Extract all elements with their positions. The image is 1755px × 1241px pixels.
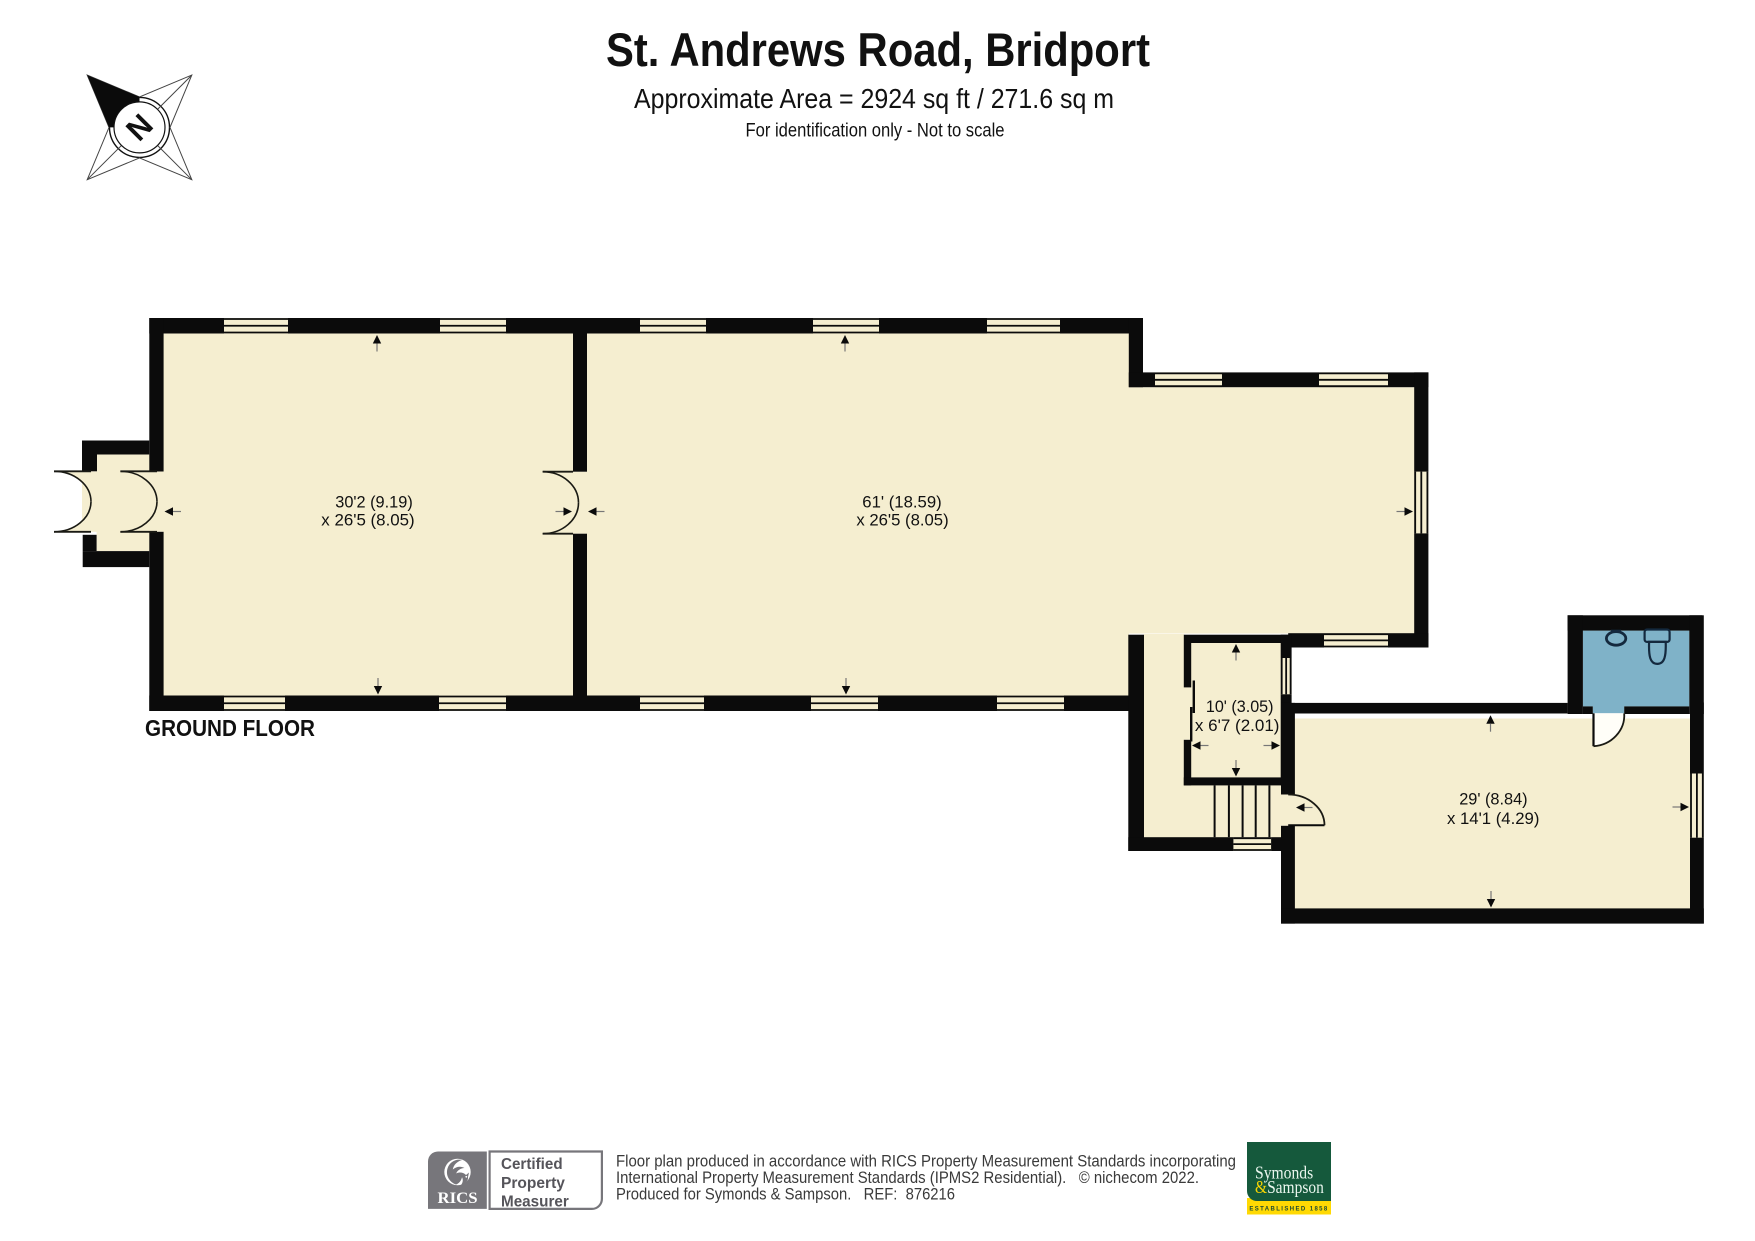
svg-text:GROUND FLOOR: GROUND FLOOR	[145, 715, 315, 741]
svg-text:10' (3.05): 10' (3.05)	[1206, 697, 1274, 716]
svg-text:ESTABLISHED 1858: ESTABLISHED 1858	[1249, 1207, 1328, 1213]
svg-text:61' (18.59): 61' (18.59)	[862, 493, 941, 512]
svg-text:International Property Measure: International Property Measurement Stand…	[616, 1169, 1199, 1187]
svg-text:Floor plan produced in accorda: Floor plan produced in accordance with R…	[616, 1153, 1236, 1171]
svg-text:x 26'5 (8.05): x 26'5 (8.05)	[321, 510, 414, 529]
svg-text:Measurer: Measurer	[501, 1194, 569, 1211]
svg-text:RICS: RICS	[438, 1190, 478, 1207]
svg-text:St. Andrews Road, Bridport: St. Andrews Road, Bridport	[606, 23, 1150, 76]
svg-text:Approximate Area = 2924 sq ft: Approximate Area = 2924 sq ft / 271.6 sq…	[634, 83, 1114, 114]
svg-text:x 6'7 (2.01): x 6'7 (2.01)	[1195, 716, 1280, 735]
svg-text:x 26'5 (8.05): x 26'5 (8.05)	[856, 511, 948, 530]
svg-text:Property: Property	[501, 1175, 565, 1192]
svg-text:30'2 (9.19): 30'2 (9.19)	[335, 493, 413, 512]
svg-text:For identification only - Not: For identification only - Not to scale	[746, 120, 1005, 142]
svg-text:x 14'1 (4.29): x 14'1 (4.29)	[1447, 809, 1540, 828]
svg-text:&Sampson: &Sampson	[1255, 1177, 1324, 1197]
svg-text:Certified: Certified	[501, 1156, 563, 1173]
svg-text:29' (8.84): 29' (8.84)	[1459, 790, 1527, 809]
svg-text:Produced for Symonds & Sampson: Produced for Symonds & Sampson. REF: 876…	[616, 1186, 955, 1204]
